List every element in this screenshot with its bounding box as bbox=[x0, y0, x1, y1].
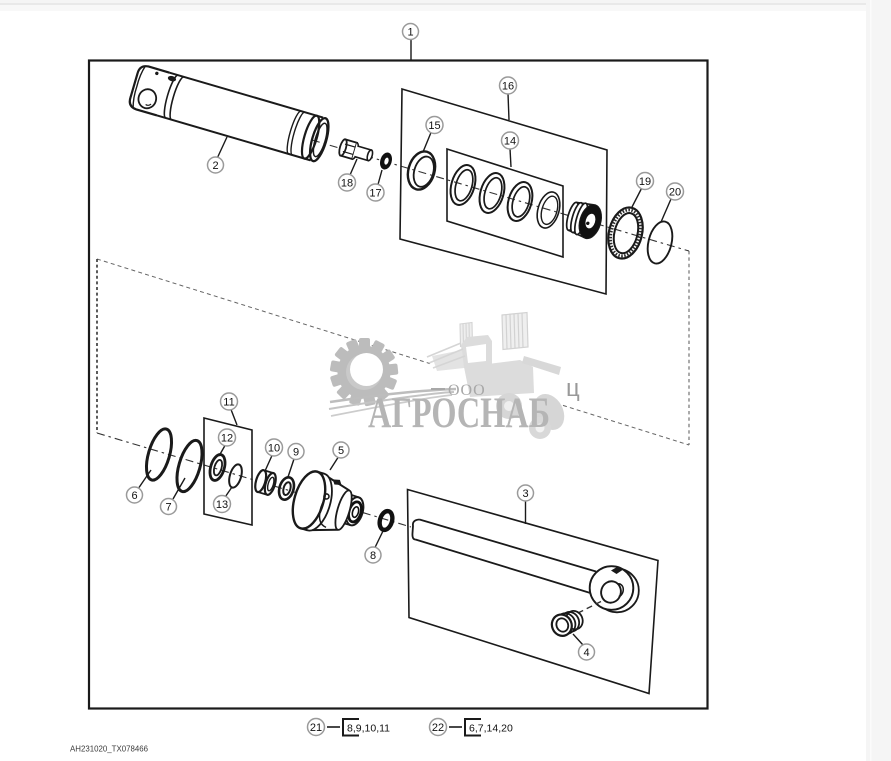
svg-text:2: 2 bbox=[212, 160, 218, 172]
svg-text:13: 13 bbox=[216, 499, 228, 511]
svg-text:22: 22 bbox=[432, 722, 444, 734]
svg-text:7: 7 bbox=[165, 502, 171, 514]
svg-text:9: 9 bbox=[293, 447, 299, 459]
svg-text:12: 12 bbox=[221, 433, 233, 445]
svg-text:20: 20 bbox=[669, 187, 681, 199]
svg-text:16: 16 bbox=[502, 81, 514, 93]
svg-text:АГРОСНАБ: АГРОСНАБ bbox=[368, 390, 550, 437]
svg-text:5: 5 bbox=[338, 445, 344, 457]
svg-text:1: 1 bbox=[407, 27, 413, 39]
svg-text:8: 8 bbox=[370, 550, 376, 562]
svg-text:15: 15 bbox=[428, 120, 440, 132]
svg-text:6: 6 bbox=[131, 490, 137, 502]
svg-text:10: 10 bbox=[268, 443, 280, 455]
svg-text:18: 18 bbox=[341, 178, 353, 190]
svg-text:14: 14 bbox=[504, 136, 516, 148]
svg-text:8,9,10,11: 8,9,10,11 bbox=[347, 723, 390, 735]
svg-text:AH231020_TX078466: AH231020_TX078466 bbox=[70, 744, 148, 754]
svg-text:3: 3 bbox=[522, 488, 528, 500]
svg-text:17: 17 bbox=[369, 188, 381, 200]
svg-text:11: 11 bbox=[223, 397, 234, 409]
svg-text:6,7,14,20: 6,7,14,20 bbox=[469, 723, 513, 735]
svg-text:21: 21 bbox=[310, 722, 322, 734]
svg-text:19: 19 bbox=[639, 176, 651, 188]
svg-text:4: 4 bbox=[583, 647, 589, 659]
svg-text:ц: ц bbox=[566, 375, 580, 402]
